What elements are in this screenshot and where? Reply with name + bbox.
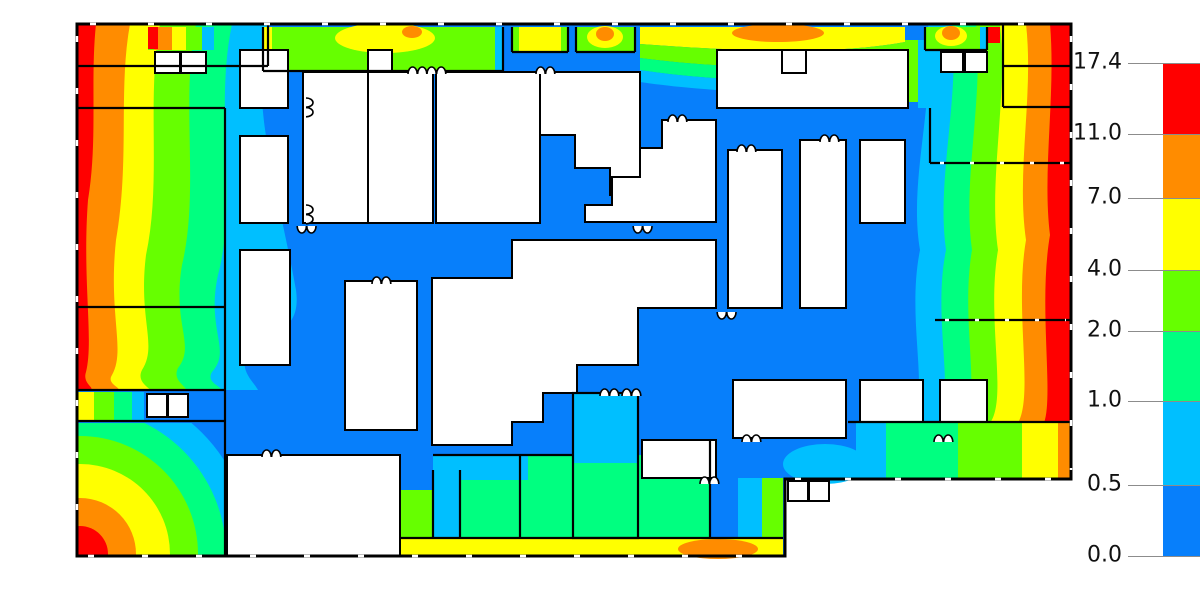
- legend-tick: [1128, 198, 1200, 199]
- legend-tick: [1128, 401, 1200, 402]
- exterior-door-boxes: [788, 481, 829, 501]
- legend-band: [1163, 134, 1200, 198]
- legend-band: [1163, 63, 1200, 134]
- contour-right-facade: [912, 24, 1071, 423]
- legend-tick: [1128, 63, 1200, 64]
- legend-label: 0.5: [1056, 472, 1122, 497]
- legend-tick: [1128, 134, 1200, 135]
- daylight-contour-figure: 17.411.07.04.02.01.00.50.0: [0, 0, 1200, 589]
- floor-plan: [0, 0, 1200, 589]
- legend-tick: [1128, 485, 1200, 486]
- legend-band: [1163, 270, 1200, 331]
- legend-tick: [1128, 331, 1200, 332]
- legend-label: 7.0: [1056, 185, 1122, 210]
- legend-label: 4.0: [1056, 257, 1122, 282]
- legend-band: [1163, 401, 1200, 485]
- legend-band: [1163, 485, 1200, 556]
- legend-label: 2.0: [1056, 318, 1122, 343]
- legend-label: 0.0: [1056, 543, 1122, 568]
- legend-label: 17.4: [1056, 50, 1122, 75]
- legend-tick: [1128, 270, 1200, 271]
- legend-tick: [1128, 556, 1200, 557]
- legend-label: 1.0: [1056, 388, 1122, 413]
- legend-label: 11.0: [1056, 121, 1122, 146]
- legend-band: [1163, 198, 1200, 270]
- legend-band: [1163, 331, 1200, 401]
